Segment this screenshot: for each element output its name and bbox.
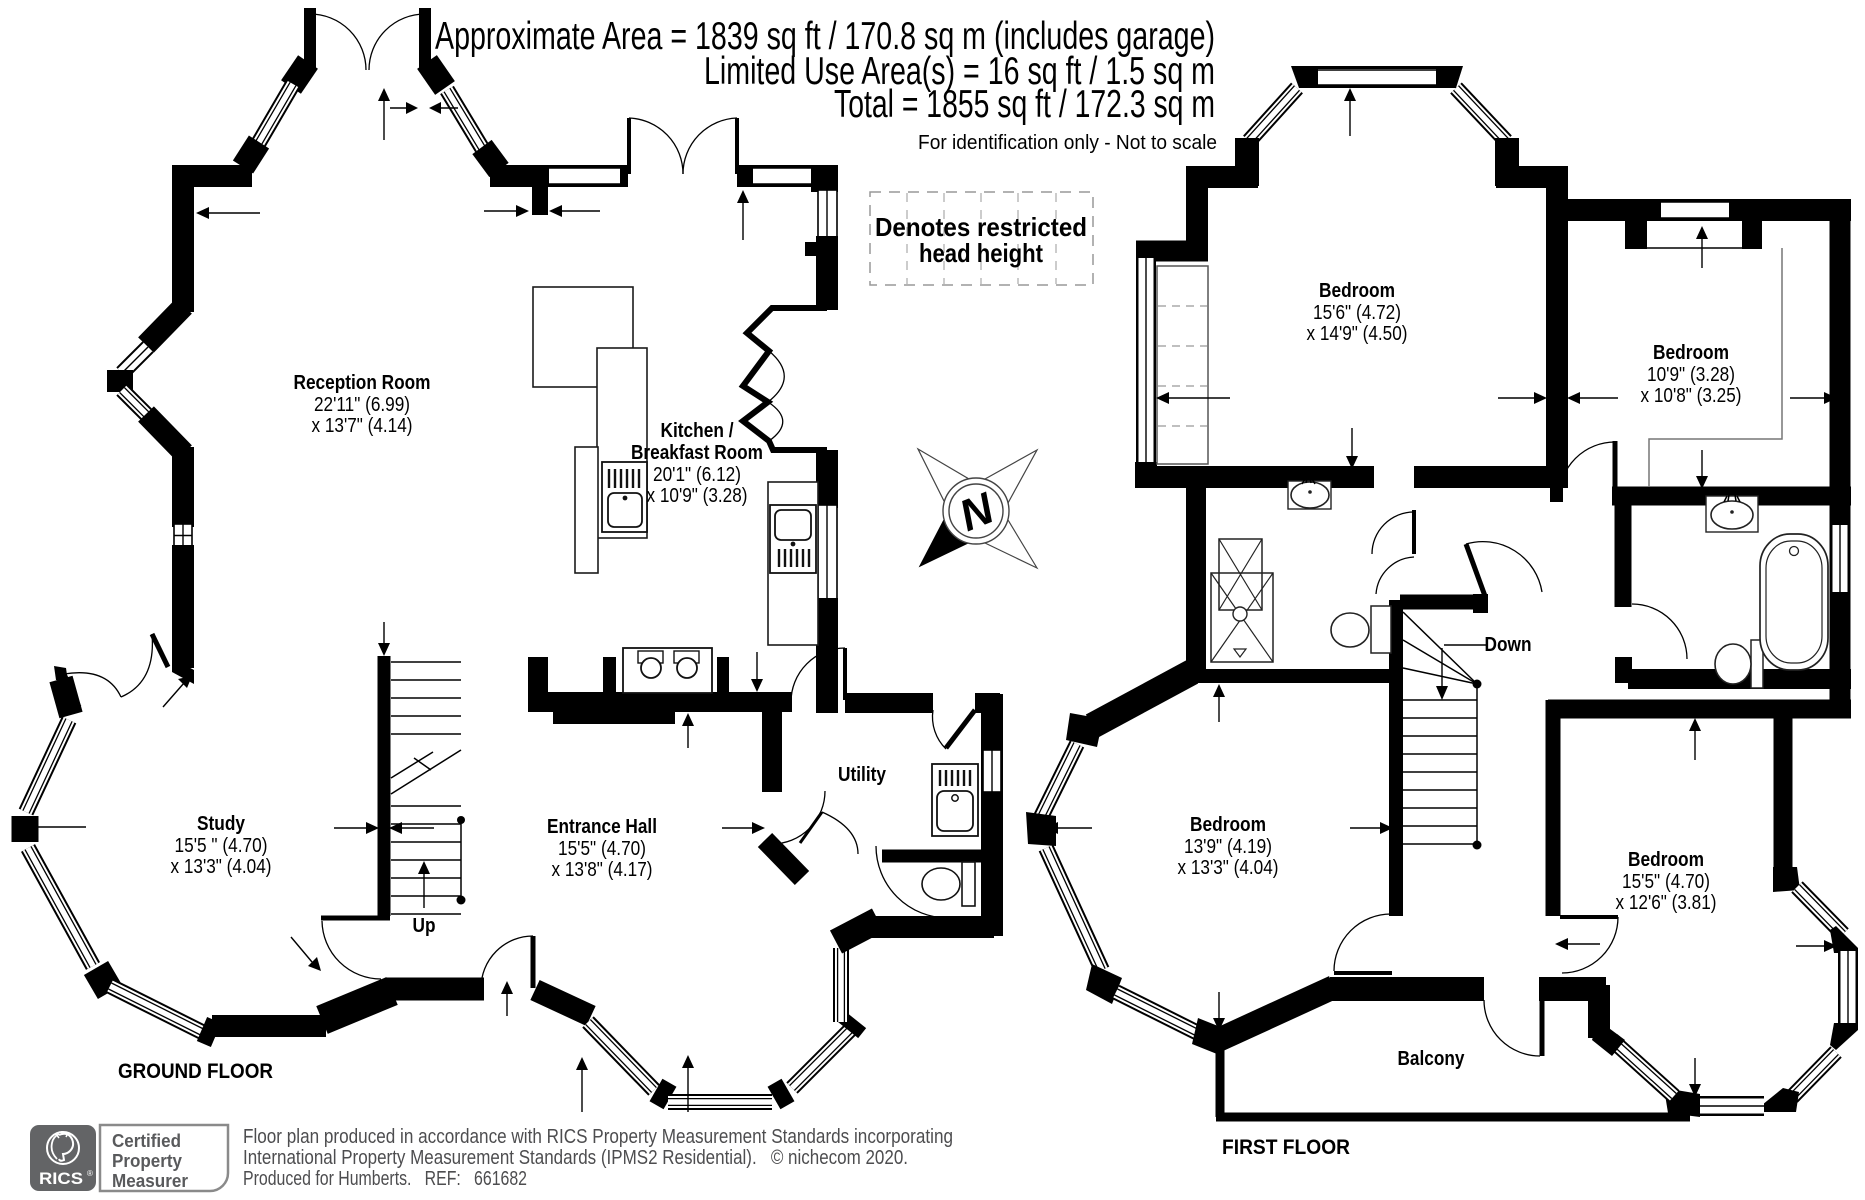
svg-text:FIRST FLOOR: FIRST FLOOR xyxy=(1222,1136,1350,1159)
svg-text:Study: Study xyxy=(197,813,246,835)
svg-text:15'5" (4.70): 15'5" (4.70) xyxy=(1622,871,1710,893)
svg-text:GROUND FLOOR: GROUND FLOOR xyxy=(118,1060,273,1083)
svg-text:Floor plan produced in accorda: Floor plan produced in accordance with R… xyxy=(243,1126,953,1148)
svg-text:13'9" (4.19): 13'9" (4.19) xyxy=(1184,836,1272,858)
svg-text:Bedroom: Bedroom xyxy=(1319,280,1395,302)
svg-text:x 13'7" (4.14): x 13'7" (4.14) xyxy=(312,415,413,437)
svg-text:x 13'3" (4.04): x 13'3" (4.04) xyxy=(1178,857,1279,879)
svg-text:x 10'9" (3.28): x 10'9" (3.28) xyxy=(647,485,748,507)
svg-text:x 12'6" (3.81): x 12'6" (3.81) xyxy=(1616,892,1717,914)
svg-text:Total = 1855 sq ft / 172.3 sq: Total = 1855 sq ft / 172.3 sq m xyxy=(834,83,1215,126)
svg-text:Bedroom: Bedroom xyxy=(1653,342,1729,364)
svg-text:®: ® xyxy=(87,1169,93,1178)
svg-text:15'5" (4.70): 15'5" (4.70) xyxy=(558,838,646,860)
svg-text:15'5 " (4.70): 15'5 " (4.70) xyxy=(175,835,268,857)
svg-text:x 14'9" (4.50): x 14'9" (4.50) xyxy=(1307,323,1408,345)
svg-text:Reception Room: Reception Room xyxy=(294,372,431,394)
svg-text:x 10'8" (3.25): x 10'8" (3.25) xyxy=(1641,385,1742,407)
svg-text:x 13'3" (4.04): x 13'3" (4.04) xyxy=(171,856,272,878)
svg-text:Property: Property xyxy=(112,1151,182,1171)
svg-text:Breakfast Room: Breakfast Room xyxy=(631,442,763,464)
svg-text:Certified: Certified xyxy=(112,1131,181,1151)
svg-text:Measurer: Measurer xyxy=(112,1171,188,1191)
svg-text:x 13'8" (4.17): x 13'8" (4.17) xyxy=(552,859,653,881)
svg-text:Kitchen /: Kitchen / xyxy=(661,420,734,442)
svg-text:head height: head height xyxy=(919,238,1043,268)
svg-text:Bedroom: Bedroom xyxy=(1190,814,1266,836)
svg-text:15'6" (4.72): 15'6" (4.72) xyxy=(1313,302,1401,324)
svg-text:Utility: Utility xyxy=(838,764,887,786)
svg-text:Entrance Hall: Entrance Hall xyxy=(547,816,657,838)
svg-text:10'9" (3.28): 10'9" (3.28) xyxy=(1647,364,1735,386)
svg-text:Down: Down xyxy=(1485,634,1532,656)
svg-text:Bedroom: Bedroom xyxy=(1628,849,1704,871)
svg-text:22'11" (6.99): 22'11" (6.99) xyxy=(314,394,410,416)
svg-text:International Property Measure: International Property Measurement Stand… xyxy=(243,1147,908,1169)
svg-text:For identification only - Not: For identification only - Not to scale xyxy=(918,132,1217,154)
svg-text:20'1" (6.12): 20'1" (6.12) xyxy=(653,464,741,486)
svg-text:Up: Up xyxy=(413,915,436,937)
svg-text:RICS: RICS xyxy=(39,1170,83,1188)
svg-text:Produced for Humberts. REF:: Produced for Humberts. REF: 661682 xyxy=(243,1168,527,1190)
svg-text:Balcony: Balcony xyxy=(1398,1048,1466,1070)
